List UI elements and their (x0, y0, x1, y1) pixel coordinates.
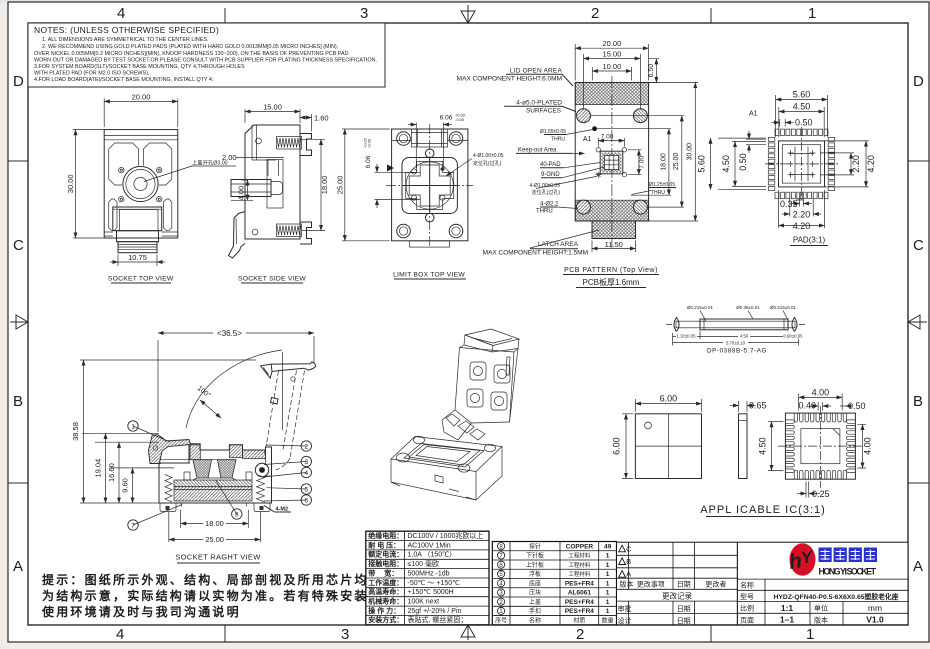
svg-text:MAX COMPONENT HEIGHT:1.5MM: MAX COMPONENT HEIGHT:1.5MM (483, 250, 588, 257)
svg-text:COPPER: COPPER (566, 543, 594, 550)
svg-text:Ø0.215±0.01: Ø0.215±0.01 (687, 305, 713, 310)
svg-text:6.06: 6.06 (365, 155, 372, 168)
svg-text:4.20: 4.20 (866, 155, 876, 173)
svg-text:1: 1 (606, 553, 610, 560)
svg-text:7.00: 7.00 (601, 134, 614, 141)
svg-text:A: A (913, 558, 923, 575)
svg-text:19.04: 19.04 (94, 459, 103, 478)
svg-text:+150℃ 5000H: +150℃ 5000H (408, 589, 454, 596)
svg-text:工程材料: 工程材料 (568, 561, 591, 569)
svg-text:-50℃ ～ +150℃: -50℃ ～ +150℃ (408, 580, 461, 587)
svg-text:PES+FR4: PES+FR4 (565, 580, 594, 587)
svg-text:1–1: 1–1 (780, 615, 794, 625)
svg-text:2.20: 2.20 (851, 155, 861, 173)
svg-text:名称: 名称 (740, 581, 754, 590)
svg-text:6.00: 6.00 (660, 394, 678, 404)
svg-text:5: 5 (304, 486, 308, 493)
svg-text:15.00: 15.00 (603, 50, 622, 59)
svg-text:4.50: 4.50 (793, 102, 811, 112)
svg-text:7.00: 7.00 (639, 156, 646, 169)
svg-text:定位孔(过孔): 定位孔(过孔) (532, 189, 561, 196)
svg-text:名称: 名称 (529, 616, 541, 624)
svg-text:0.50: 0.50 (848, 401, 866, 411)
svg-text:B: B (913, 393, 923, 410)
svg-text:4.FOR LOAD BOARD(ATE)/SOCKET: 4.FOR LOAD BOARD(ATE)/SOCKET BASE MOUNTI… (34, 77, 214, 83)
svg-text:更改事项: 更改事项 (637, 580, 665, 589)
svg-text:<36.5>: <36.5> (217, 329, 242, 338)
svg-text:高温寿命：: 高温寿命： (368, 587, 403, 596)
svg-text:4.00: 4.00 (237, 186, 246, 201)
svg-text:20.00: 20.00 (132, 92, 151, 101)
svg-text:WITH PLATED PAD (FOR M2.0: WITH PLATED PAD (FOR M2.0 ISO SCREWS), (34, 71, 150, 77)
svg-text:日期: 日期 (677, 617, 691, 625)
svg-text:2: 2 (304, 443, 308, 450)
svg-text:日期: 日期 (677, 605, 691, 613)
svg-text:单位: 单位 (814, 604, 828, 613)
svg-text:40-PAD: 40-PAD (540, 162, 561, 168)
svg-text:PES+FR4: PES+FR4 (565, 599, 594, 606)
svg-text:安装方式：: 安装方式： (368, 615, 403, 624)
svg-text:5.60: 5.60 (793, 90, 811, 100)
svg-text:HONG YI SOCKET: HONG YI SOCKET (819, 567, 877, 577)
svg-text:下针板: 下针板 (526, 552, 544, 560)
svg-text:1: 1 (606, 599, 610, 606)
svg-text:C: C (13, 237, 24, 254)
svg-text:0.35: 0.35 (780, 199, 798, 209)
svg-text:5.60: 5.60 (697, 155, 707, 173)
svg-text:0.90±0.05: 0.90±0.05 (783, 334, 803, 339)
svg-text:25.00: 25.00 (673, 153, 680, 171)
svg-text:30.00: 30.00 (687, 143, 694, 161)
svg-text:操 作 力：: 操 作 力： (368, 606, 400, 615)
svg-text:版本: 版本 (620, 580, 634, 589)
svg-text:1: 1 (606, 590, 610, 597)
svg-text:4.50: 4.50 (740, 334, 749, 339)
svg-text:1.10±0.05: 1.10±0.05 (676, 334, 696, 339)
svg-text:A1: A1 (749, 111, 758, 118)
svg-text:25.00: 25.00 (335, 176, 344, 195)
svg-text:1: 1 (606, 571, 610, 578)
svg-text:数量: 数量 (602, 616, 614, 624)
svg-text:100K next: 100K next (408, 599, 440, 606)
svg-text:18.00: 18.00 (660, 153, 667, 171)
svg-text:Ø0.38±0.01: Ø0.38±0.01 (736, 305, 760, 310)
svg-text:25gf +/-20% / Pin: 25gf +/-20% / Pin (408, 608, 462, 615)
svg-text:3: 3 (341, 626, 349, 643)
svg-text:DP-0388B-5.7-AG: DP-0388B-5.7-AG (707, 348, 767, 355)
svg-text:6.00: 6.00 (612, 437, 622, 455)
svg-text:4.20: 4.20 (793, 221, 811, 231)
svg-text:D: D (13, 73, 24, 90)
svg-text:≤100 毫欧: ≤100 毫欧 (408, 559, 439, 568)
svg-text:LIMIT BOX TOP VIEW: LIMIT BOX TOP VIEW (393, 272, 465, 279)
svg-text:4.00: 4.00 (863, 437, 873, 455)
svg-text:38.58: 38.58 (71, 422, 80, 441)
svg-text:1. ALL DIMENSIONS ARE SYMM: 1. ALL DIMENSIONS ARE SYMMETRICAL TO THE… (42, 37, 208, 43)
svg-text:材质: 材质 (573, 616, 585, 624)
svg-text:4: 4 (116, 626, 124, 643)
svg-text:绝缘电阻：: 绝缘电阻： (368, 531, 403, 540)
svg-text:LID OPEN AREA: LID OPEN AREA (510, 68, 563, 75)
svg-text:页面: 页面 (740, 616, 754, 624)
svg-text:使用环境请及时与我司沟通说明: 使用环境请及时与我司沟通说明 (41, 604, 241, 619)
svg-text:审批: 审批 (618, 604, 632, 613)
svg-text:SOCKET SIDE VIEW: SOCKET SIDE VIEW (238, 276, 306, 283)
svg-text:浮板: 浮板 (529, 570, 541, 578)
svg-text:10.00: 10.00 (603, 62, 622, 71)
svg-text:PES+FR4: PES+FR4 (565, 608, 594, 615)
svg-text:16.60: 16.60 (107, 463, 116, 482)
svg-text:18.00: 18.00 (205, 519, 224, 528)
svg-text:3.FOR SYSTEM BOARD(SLT)/SOCK: 3.FOR SYSTEM BOARD(SLT)/SOCKET BASE MOUN… (34, 64, 245, 70)
svg-text:B: B (13, 393, 23, 410)
svg-text:2: 2 (591, 5, 599, 22)
svg-text:THRU: THRU (551, 137, 565, 143)
svg-text:500MHz -1db: 500MHz -1db (408, 570, 450, 577)
svg-text:A: A (13, 558, 23, 575)
svg-text:25.00: 25.00 (205, 535, 224, 544)
svg-text:日期: 日期 (677, 581, 691, 589)
svg-text:-0.00: -0.00 (455, 117, 465, 122)
svg-text:工作温度：: 工作温度： (368, 578, 403, 587)
svg-text:6.06: 6.06 (440, 115, 453, 122)
svg-text:-0.00: -0.00 (367, 138, 372, 148)
svg-text:A: A (626, 570, 631, 579)
svg-text:机械寿命：: 机械寿命： (368, 597, 403, 606)
svg-text:4: 4 (304, 470, 308, 477)
svg-text:比例: 比例 (740, 604, 754, 613)
svg-text:SOCKET TOP VIEW: SOCKET TOP VIEW (108, 276, 174, 283)
svg-text:4-Ø1.00±0.05: 4-Ø1.00±0.05 (473, 153, 504, 159)
svg-text:mm: mm (868, 603, 882, 613)
svg-text:工程材料: 工程材料 (568, 552, 591, 560)
svg-text:C: C (913, 237, 924, 254)
svg-text:版本: 版本 (814, 615, 828, 624)
svg-text:工程材料: 工程材料 (568, 570, 591, 578)
svg-text:9.60: 9.60 (121, 478, 130, 493)
svg-text:额定电流：: 额定电流： (367, 550, 403, 559)
svg-text:上盖: 上盖 (529, 598, 541, 606)
svg-text:A1: A1 (583, 136, 592, 143)
svg-text:B: B (626, 557, 631, 566)
svg-text:SURFACES: SURFACES (526, 108, 562, 115)
svg-text:APPL ICABLE IC(3:1): APPL ICABLE IC(3:1) (700, 504, 826, 516)
svg-text:9-GND: 9-GND (541, 172, 560, 178)
svg-text:HYDZ-QFN40-P0.5-6X6X0.65塑胶老化座: HYDZ-QFN40-P0.5-6X6X0.65塑胶老化座 (773, 592, 898, 601)
svg-text:提示：图纸所示外观、结构、局部剖视及所用芯片均: 提示：图纸所示外观、结构、局部剖视及所用芯片均 (42, 572, 369, 587)
svg-text:20.00: 20.00 (603, 39, 622, 48)
svg-text:1: 1 (606, 608, 610, 615)
svg-text:18.00: 18.00 (320, 176, 329, 195)
svg-text:表贴式, 螺丝紧固；: 表贴式, 螺丝紧固； (408, 615, 468, 624)
svg-text:定位孔(过孔): 定位孔(过孔) (473, 160, 502, 167)
svg-text:上盖开孔Ø3.00: 上盖开孔Ø3.00 (192, 159, 228, 167)
svg-text:设计: 设计 (618, 616, 632, 625)
svg-text:为结构示意，实际结构请以实物为准。若有特殊安装: 为结构示意，实际结构请以实物为准。若有特殊安装 (42, 588, 369, 603)
svg-text:7: 7 (131, 522, 135, 529)
svg-text:0.25: 0.25 (812, 489, 830, 499)
svg-text:4-ø5.0-PLATED: 4-ø5.0-PLATED (516, 100, 562, 107)
svg-text:更改者: 更改者 (705, 580, 726, 589)
svg-text:Ø0.215±0.01: Ø0.215±0.01 (770, 305, 796, 310)
svg-text:DC100V / 1000兆欧以上: DC100V / 1000兆欧以上 (408, 531, 484, 540)
svg-text:PCB PATTERN (Top View): PCB PATTERN (Top View) (564, 267, 658, 274)
svg-text:更改记录: 更改记录 (662, 590, 692, 600)
svg-text:30.00: 30.00 (66, 174, 75, 193)
svg-text:1: 1 (606, 562, 610, 569)
svg-text:带 宽：: 带 宽： (368, 568, 398, 577)
svg-text:NOTES: (UNLESS OTHERWISE SPECI: NOTES: (UNLESS OTHERWISE SPECIFIED) (34, 25, 219, 35)
svg-text:D: D (913, 73, 924, 90)
svg-text:V1.0: V1.0 (866, 615, 884, 625)
svg-text:Keep-out Area: Keep-out Area (518, 148, 557, 154)
svg-text:序号: 序号 (495, 616, 507, 624)
svg-text:1.0A （150℃）: 1.0A （150℃） (408, 551, 457, 559)
svg-text:1: 1 (808, 5, 816, 22)
svg-text:4.50: 4.50 (721, 155, 731, 173)
svg-text:SOCKET RAGHT VIEW: SOCKET RAGHT VIEW (175, 553, 261, 562)
svg-text:压块: 压块 (529, 589, 541, 597)
svg-text:4-Ø1.00±0.05: 4-Ø1.00±0.05 (529, 183, 560, 189)
svg-text:PCB板厚1.6mm: PCB板厚1.6mm (583, 277, 640, 287)
svg-text:THRU: THRU (651, 190, 665, 196)
svg-text:1.60: 1.60 (314, 114, 329, 123)
svg-text:底座: 底座 (529, 579, 541, 587)
svg-text:上针板: 上针板 (526, 561, 544, 569)
svg-text:耐 电 压：: 耐 电 压： (368, 540, 400, 549)
svg-text:AL6061: AL6061 (568, 590, 592, 597)
svg-text:4: 4 (117, 5, 125, 22)
svg-text:10.75: 10.75 (128, 253, 147, 262)
svg-text:6: 6 (304, 497, 308, 504)
svg-text:2: 2 (576, 626, 584, 643)
svg-text:11.50: 11.50 (605, 240, 623, 249)
svg-text:49: 49 (604, 543, 612, 550)
svg-text:0.50: 0.50 (795, 118, 813, 128)
svg-text:1: 1 (606, 580, 610, 587)
svg-text:THRU: THRU (536, 209, 553, 215)
svg-text:0.40: 0.40 (798, 401, 816, 411)
svg-text:型号: 型号 (740, 592, 754, 601)
svg-text:C: C (626, 544, 632, 553)
svg-text:AC100V 1Min: AC100V 1Min (408, 542, 451, 549)
svg-text:PAD(3:1): PAD(3:1) (793, 236, 826, 245)
svg-text:15.00: 15.00 (263, 103, 282, 112)
svg-text:3: 3 (360, 5, 368, 22)
svg-text:3: 3 (304, 459, 308, 466)
svg-text:MAX COMPONENT HEIGHT:6.0MM: MAX COMPONENT HEIGHT:6.0MM (457, 76, 562, 83)
svg-text:2.20: 2.20 (793, 210, 811, 220)
svg-text:5.70±0.10: 5.70±0.10 (726, 341, 746, 346)
svg-text:2. WE RECOMMEND USING GOLD: 2. WE RECOMMEND USING GOLD PLATED PADS (… (42, 44, 339, 50)
svg-text:OVER NICKEL 0.005MM[0.2 MIC: OVER NICKEL 0.005MM[0.2 MICRO INCHES](MI… (34, 51, 349, 57)
svg-text:接触电阻：: 接触电阻： (368, 559, 403, 568)
svg-text:4.50: 4.50 (758, 437, 768, 455)
svg-text:0.65: 0.65 (749, 401, 767, 411)
svg-text:手扣: 手扣 (529, 607, 541, 615)
svg-text:WORN OUT OR DAMAGED BY TE: WORN OUT OR DAMAGED BY TEST SOCKET.OR PL… (34, 58, 377, 64)
svg-text:0.50: 0.50 (738, 153, 748, 171)
svg-text:1:1: 1:1 (781, 603, 794, 613)
svg-text:1: 1 (806, 626, 814, 643)
svg-text:4.00: 4.00 (812, 387, 830, 397)
svg-text:探针: 探针 (529, 542, 541, 550)
